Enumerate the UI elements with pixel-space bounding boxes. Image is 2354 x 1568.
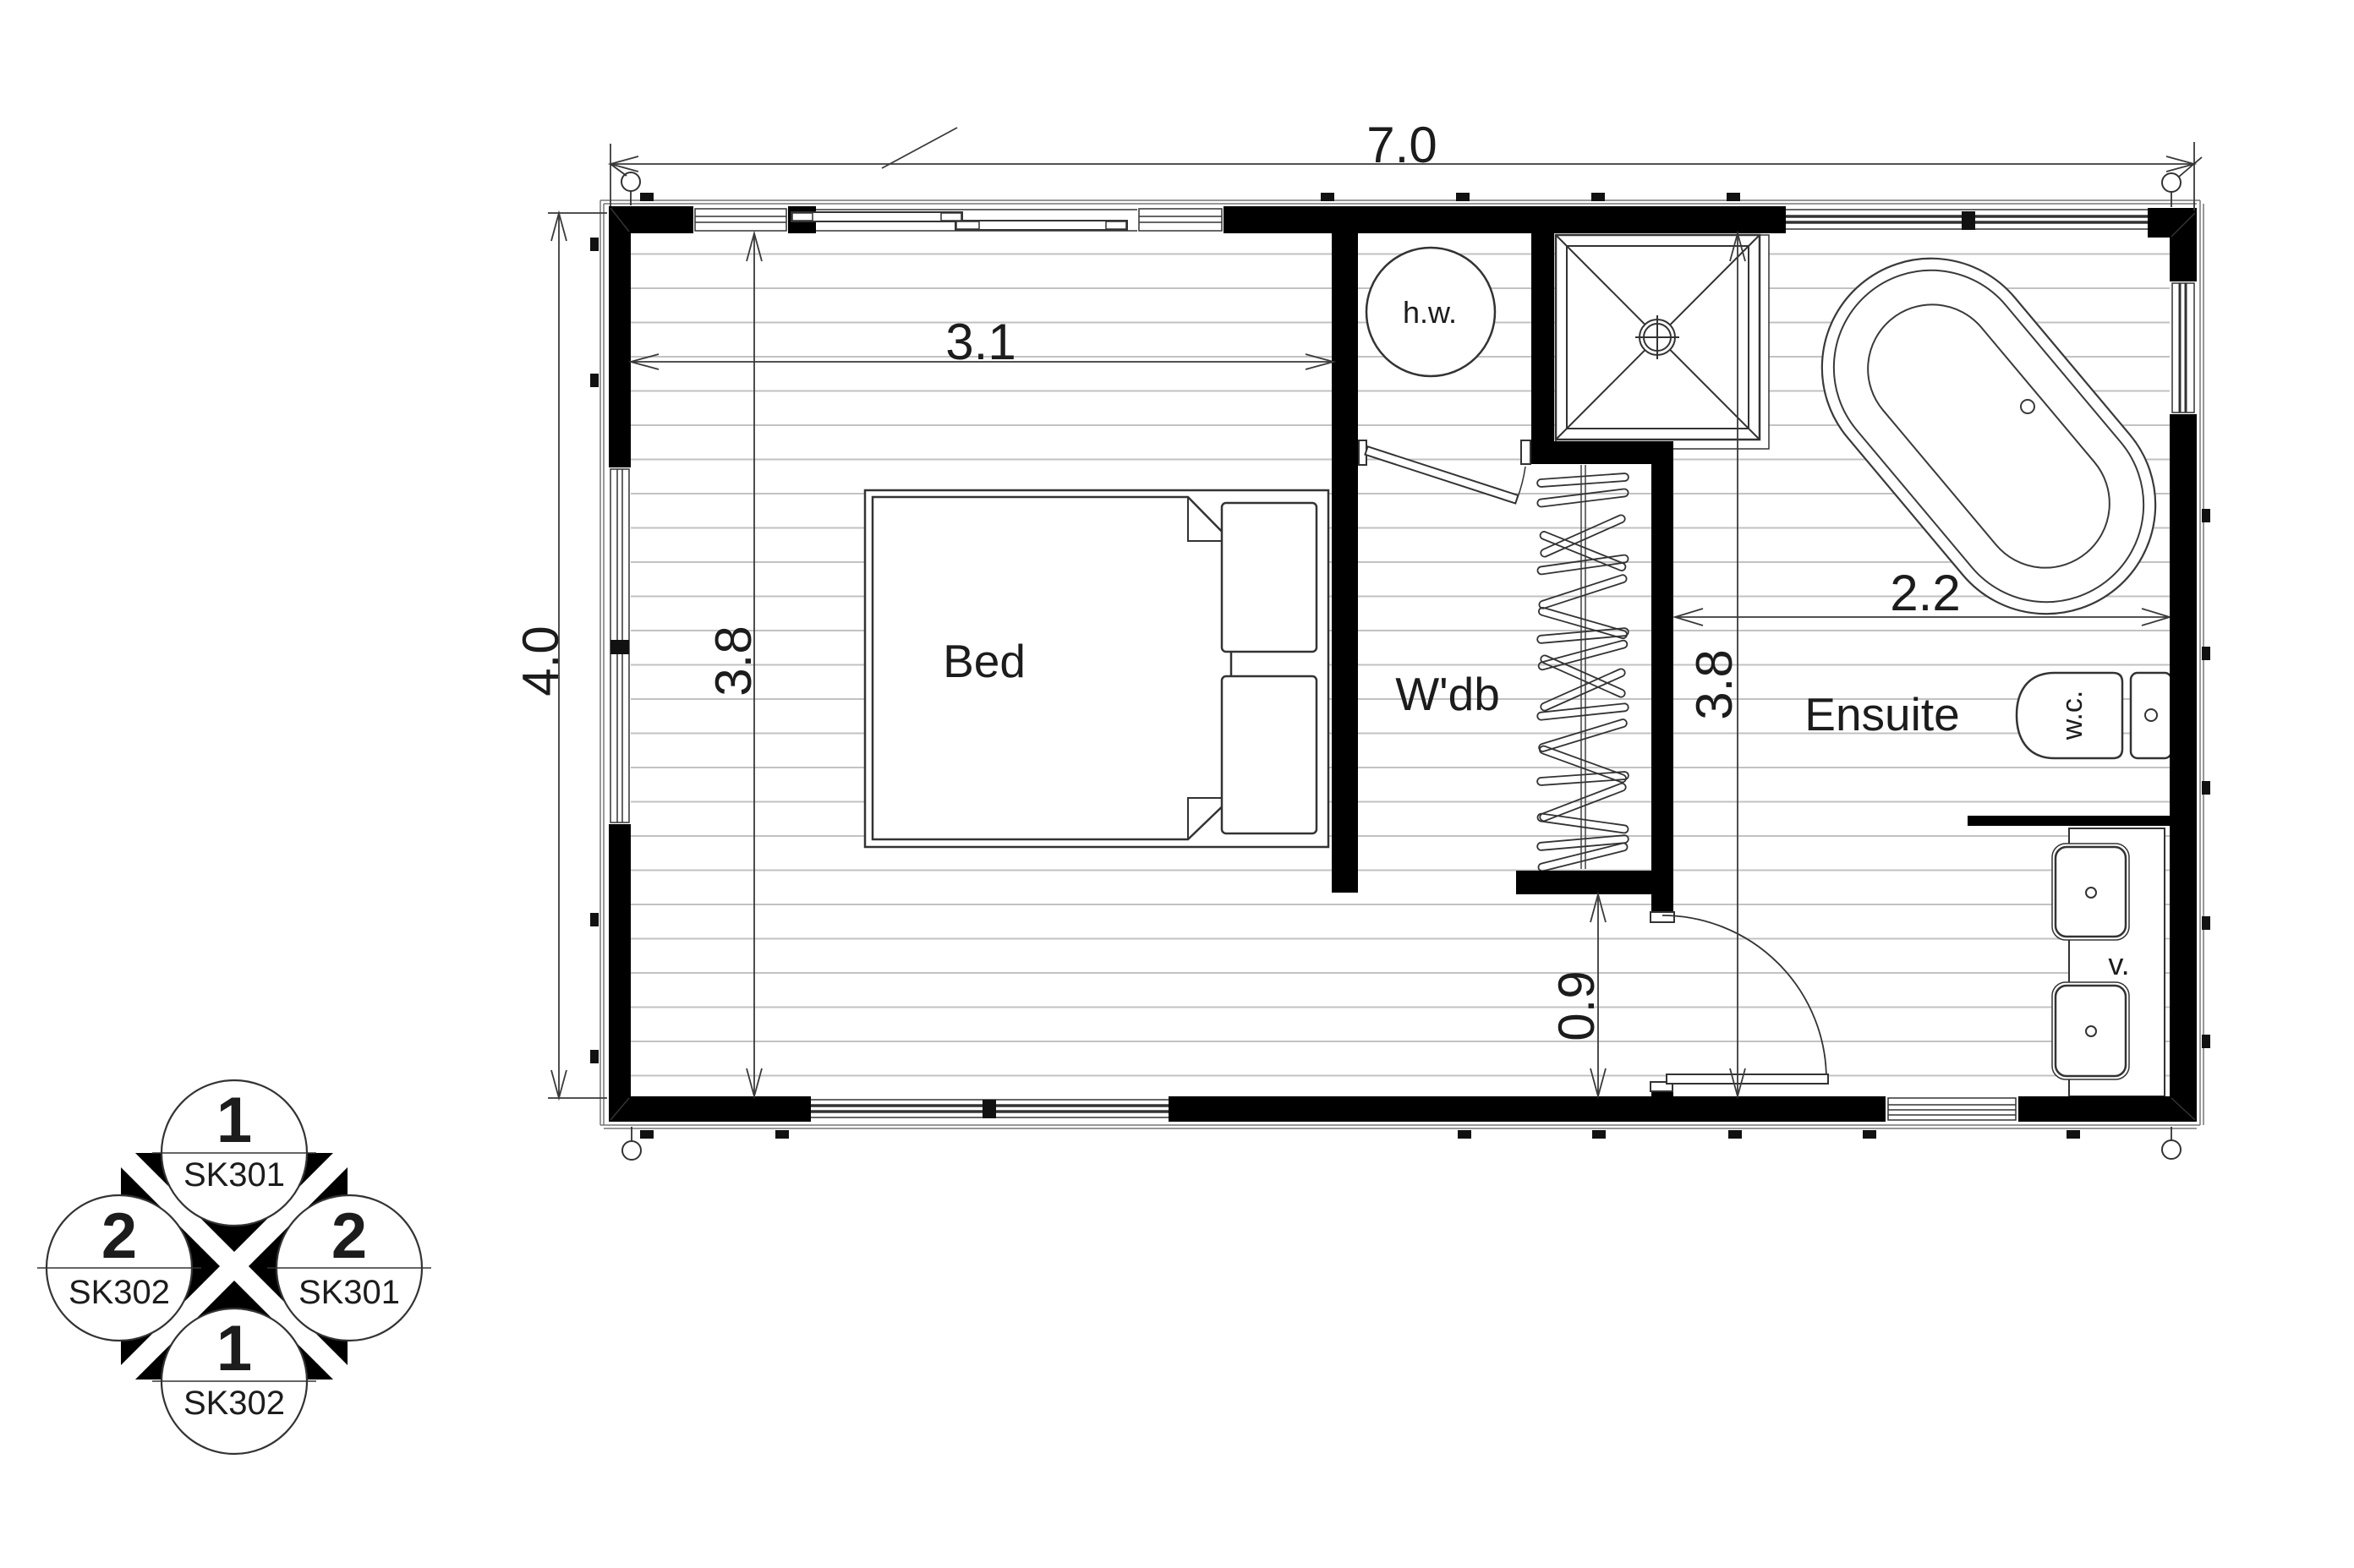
- svg-text:Bed: Bed: [943, 635, 1026, 687]
- svg-text:3.8: 3.8: [705, 626, 762, 696]
- svg-text:7.0: 7.0: [1366, 117, 1437, 173]
- svg-text:0.9: 0.9: [1548, 970, 1605, 1041]
- svg-text:3.1: 3.1: [945, 314, 1016, 370]
- svg-text:SK301: SK301: [298, 1274, 400, 1311]
- svg-text:Ensuite: Ensuite: [1804, 688, 1959, 740]
- svg-text:h.w.: h.w.: [1403, 295, 1457, 330]
- svg-text:w.c.: w.c.: [2056, 691, 2088, 741]
- svg-text:1: 1: [216, 1084, 252, 1156]
- svg-text:SK302: SK302: [68, 1274, 170, 1311]
- svg-text:1: 1: [216, 1313, 252, 1385]
- svg-text:SK302: SK302: [183, 1385, 285, 1422]
- svg-text:SK301: SK301: [183, 1156, 285, 1194]
- svg-text:2: 2: [331, 1200, 367, 1272]
- svg-text:2: 2: [101, 1200, 137, 1272]
- svg-text:2.2: 2.2: [1890, 565, 1960, 621]
- svg-text:3.8: 3.8: [1686, 649, 1743, 719]
- svg-text:W'db: W'db: [1395, 668, 1500, 720]
- svg-text:v.: v.: [2108, 947, 2129, 981]
- svg-text:4.0: 4.0: [512, 626, 569, 696]
